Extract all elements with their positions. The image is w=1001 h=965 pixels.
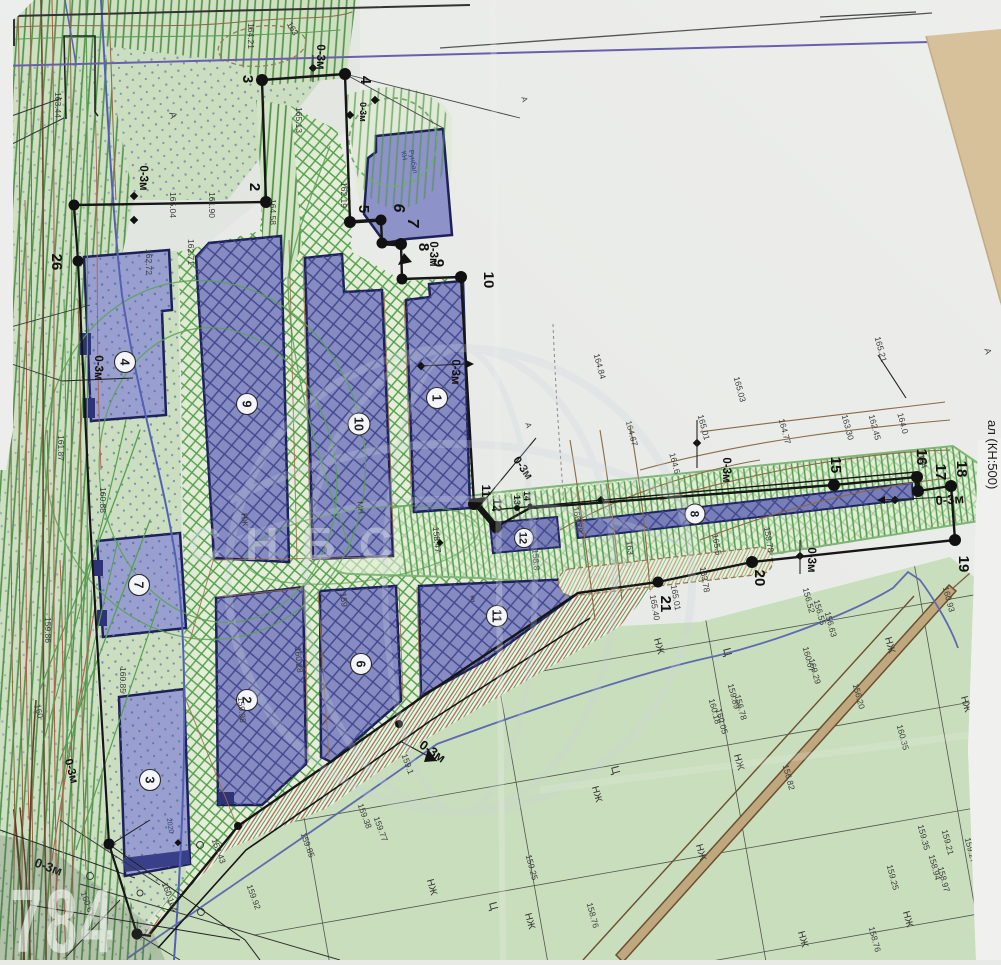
svg-text:3: 3 [239, 75, 256, 83]
svg-text:3: 3 [143, 777, 157, 784]
svg-text:9: 9 [240, 401, 254, 408]
svg-text:20: 20 [751, 570, 768, 587]
svg-text:5: 5 [355, 205, 372, 213]
svg-text:6: 6 [354, 661, 368, 668]
svg-text:17: 17 [932, 464, 949, 481]
svg-text:0-3м: 0-3м [137, 165, 149, 190]
svg-text:7: 7 [404, 219, 421, 229]
svg-text:10: 10 [352, 417, 366, 431]
svg-text:161.90: 161.90 [207, 192, 217, 218]
svg-text:кн: кн [468, 595, 476, 603]
svg-text:784: 784 [10, 872, 112, 960]
svg-text:15: 15 [827, 457, 844, 474]
svg-text:0-3м: 0-3м [805, 547, 817, 572]
svg-text:0-3м: 0-3м [720, 457, 732, 482]
svg-text:7: 7 [132, 582, 146, 589]
svg-text:18: 18 [953, 461, 970, 478]
svg-text:11: 11 [479, 485, 493, 498]
svg-text:0-3м: 0-3м [935, 491, 964, 508]
svg-text:165.13: 165.13 [294, 107, 304, 133]
svg-text:0-3м: 0-3м [449, 359, 461, 384]
svg-text:160.85: 160.85 [118, 667, 128, 693]
svg-text:162.71: 162.71 [186, 239, 196, 265]
svg-text:162.19: 162.19 [339, 182, 349, 208]
svg-text:19: 19 [955, 556, 972, 573]
svg-text:162.72: 162.72 [144, 249, 154, 275]
svg-text:2: 2 [246, 183, 263, 191]
svg-text:6: 6 [390, 204, 407, 213]
svg-text:164.58: 164.58 [268, 199, 278, 225]
svg-text:160.88: 160.88 [98, 487, 108, 513]
svg-text:0-3м: 0-3м [92, 355, 104, 380]
svg-text:4: 4 [357, 76, 374, 85]
svg-text:СНБС: СНБС [188, 518, 416, 570]
svg-text:159.86: 159.86 [43, 617, 53, 643]
svg-text:159: 159 [338, 592, 349, 607]
svg-text:161.87: 161.87 [56, 435, 66, 461]
svg-text:8: 8 [688, 511, 700, 518]
svg-text:0-3м: 0-3м [358, 102, 368, 122]
svg-text:0-3м: 0-3м [314, 44, 326, 69]
svg-text:0-3м: 0-3м [427, 241, 439, 266]
svg-text:163.44: 163.44 [53, 92, 63, 118]
svg-text:165.04: 165.04 [168, 192, 178, 218]
svg-text:164.21: 164.21 [246, 23, 256, 49]
svg-text:ал (КН:500): ал (КН:500) [985, 420, 1000, 489]
svg-text:26: 26 [48, 254, 65, 271]
svg-text:4: 4 [118, 359, 132, 366]
svg-text:1: 1 [430, 395, 444, 402]
